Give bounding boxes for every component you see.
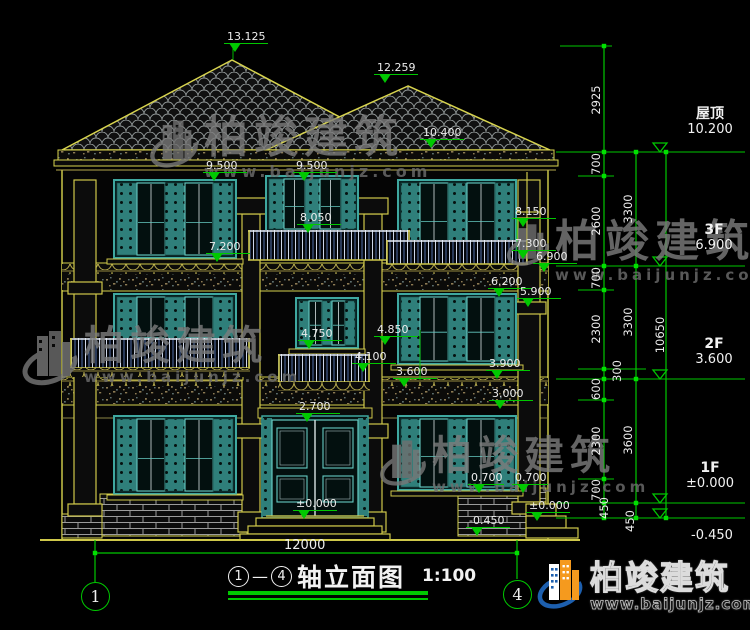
elevation-triangle-icon	[229, 43, 241, 52]
elevation-value: -0.450	[469, 514, 504, 527]
elevation-triangle-icon	[379, 74, 391, 83]
elevation-triangle-icon	[301, 413, 313, 422]
watermark-brand: 柏竣建筑	[84, 326, 301, 366]
title-underline-thin	[228, 598, 428, 600]
company-logo-site: www.baijunjz.com	[590, 595, 750, 613]
dimension-label: 2300	[589, 314, 603, 343]
dimension-label: 10650	[653, 317, 667, 354]
elevation-triangle-icon	[473, 484, 485, 493]
watermark-brand: 柏竣建筑	[204, 116, 431, 160]
storey-elevation: 3.600	[676, 352, 750, 368]
title-axis-circle-start: 1	[228, 566, 249, 587]
storey-name: 2F	[676, 336, 750, 352]
watermark-brand: 柏竣建筑	[432, 436, 649, 476]
elevation-value: 13.125	[227, 30, 266, 43]
elevation-value: 9.500	[206, 159, 238, 172]
elevation-triangle-icon	[493, 288, 505, 297]
storey-elevation: 6.900	[676, 238, 750, 254]
dimension-label: 3300	[621, 307, 635, 336]
elevation-value: 2.700	[299, 400, 331, 413]
elevation-triangle-icon	[517, 250, 529, 259]
title-scale: 1:100	[422, 566, 476, 586]
elevation-value: 3.900	[489, 357, 521, 370]
elevation-triangle-icon	[208, 172, 220, 181]
elevation-triangle-icon	[398, 378, 410, 387]
elevation-marker: 3.900	[486, 370, 530, 371]
elevation-value: 8.150	[515, 205, 547, 218]
elevation-triangle-icon	[298, 172, 310, 181]
company-logo-brand: 柏竣建筑	[590, 561, 750, 594]
elevation-value: 8.050	[300, 211, 332, 224]
storey-name: 3F	[676, 222, 750, 238]
elevation-marker: 10.400	[420, 139, 464, 140]
elevation-triangle-icon	[302, 224, 314, 233]
elevation-triangle-icon	[211, 253, 223, 262]
storey-level-label: -0.450	[674, 528, 750, 544]
company-logo-icon	[536, 556, 584, 618]
title-text: 轴立面图	[297, 558, 405, 594]
elevation-marker: 0.700	[512, 484, 548, 485]
floor-band-3f	[62, 263, 548, 291]
storey-level-label: 屋顶10.200	[672, 106, 748, 138]
storey-level-label: 2F3.600	[676, 336, 750, 368]
dimension-label: 450	[597, 497, 611, 519]
elevation-triangle-icon	[298, 510, 310, 519]
elevation-marker: ±0.000	[526, 512, 570, 513]
elevation-marker: 6.900	[533, 263, 577, 264]
elevation-triangle-icon	[471, 527, 483, 536]
elevation-value: 7.300	[515, 237, 547, 250]
axis-number: 4	[512, 585, 522, 604]
axis-bubble-1: 1	[81, 582, 110, 611]
watermark: 柏竣建筑 www.baijunjz.com	[378, 436, 649, 496]
elevation-value: 0.700	[515, 471, 547, 484]
watermark: 柏竣建筑 www.baijunjz.com	[20, 326, 301, 394]
elevation-marker: 3.000	[489, 400, 533, 401]
elevation-value: 4.100	[355, 350, 387, 363]
elevation-marker: 4.100	[352, 363, 396, 364]
storey-name: 1F	[672, 460, 748, 476]
title-dash: —	[252, 567, 268, 586]
watermark-site: www.baijunjz.com	[555, 266, 750, 284]
balcony-railing	[248, 230, 410, 260]
elevation-triangle-icon	[303, 340, 315, 349]
dimension-label: 3600	[621, 425, 635, 454]
elevation-value: 10.400	[423, 126, 462, 139]
elevation-marker: 13.125	[224, 43, 268, 44]
elevation-value: 3.600	[396, 365, 428, 378]
elevation-marker: -0.450	[466, 527, 510, 528]
elevation-value: 5.900	[520, 285, 552, 298]
dimension-label: 2600	[589, 206, 603, 235]
cad-elevation-drawing: 柏竣建筑 www.baijunjz.com 柏竣建筑 www.baijunjz.…	[0, 0, 750, 630]
elevation-value: 6.200	[491, 275, 523, 288]
elevation-value: 4.750	[301, 327, 333, 340]
elevation-marker: ±0.000	[293, 510, 337, 511]
elevation-value: 9.500	[296, 159, 328, 172]
elevation-marker: 9.500	[293, 172, 337, 173]
elevation-triangle-icon	[538, 263, 550, 272]
watermark-logo-icon	[148, 116, 200, 176]
elevation-value: 3.000	[492, 387, 524, 400]
elevation-triangle-icon	[379, 336, 391, 345]
storey-elevation: 10.200	[672, 122, 748, 138]
storey-elevation: ±0.000	[672, 476, 748, 492]
dimension-label: 600	[589, 378, 603, 400]
window	[107, 416, 243, 500]
storey-name: 屋顶	[672, 106, 748, 122]
elevation-marker: 3.600	[393, 378, 437, 379]
company-logo: 柏竣建筑 www.baijunjz.com	[536, 556, 750, 618]
dimension-label: 2925	[589, 85, 603, 114]
axis-bubble-4: 4	[503, 580, 532, 609]
elevation-triangle-icon	[357, 363, 369, 372]
dimension-label: 700	[589, 267, 603, 289]
elevation-triangle-icon	[491, 370, 503, 379]
house-elevation-canvas	[0, 0, 750, 630]
elevation-value: 4.850	[377, 323, 409, 336]
elevation-value: 12.259	[377, 61, 416, 74]
dimension-label: 3300	[621, 194, 635, 223]
title-axis-circle-end: 4	[271, 566, 292, 587]
elevation-marker: 2.700	[296, 413, 340, 414]
storey-level-label: 3F6.900	[676, 222, 750, 254]
title-underline-thick	[228, 591, 428, 595]
dimension-label: 450	[623, 510, 637, 532]
storey-level-label: 1F±0.000	[672, 460, 748, 492]
elevation-triangle-icon	[517, 218, 529, 227]
elevation-marker: 4.850	[374, 336, 418, 337]
watermark-site: www.baijunjz.com	[84, 368, 301, 386]
dimension-label: 300	[610, 360, 624, 382]
overall-width-dimension: 12000	[284, 538, 325, 553]
elevation-marker: 0.700	[468, 484, 504, 485]
elevation-value: ±0.000	[296, 497, 337, 510]
elevation-triangle-icon	[517, 484, 529, 493]
watermark: 柏竣建筑 www.baijunjz.com	[148, 116, 431, 181]
drawing-title: 1 — 4 轴立面图 1:100	[228, 558, 476, 594]
elevation-triangle-icon	[425, 139, 437, 148]
elevation-marker: 9.500	[203, 172, 247, 173]
elevation-value: 7.200	[209, 240, 241, 253]
elevation-marker: 12.259	[374, 74, 418, 75]
elevation-triangle-icon	[531, 512, 543, 521]
elevation-marker: 8.150	[512, 218, 556, 219]
dimension-label: 2300	[589, 426, 603, 455]
axis-number: 1	[90, 587, 100, 606]
dimension-label: 700	[589, 153, 603, 175]
watermark-logo-icon	[378, 436, 428, 494]
elevation-marker: 7.200	[206, 253, 250, 254]
elevation-triangle-icon	[522, 298, 534, 307]
watermark-logo-icon	[20, 326, 80, 394]
elevation-value: ±0.000	[529, 499, 570, 512]
elevation-marker: 5.900	[517, 298, 561, 299]
elevation-value: 6.900	[536, 250, 568, 263]
elevation-triangle-icon	[494, 400, 506, 409]
elevation-marker: 4.750	[298, 340, 342, 341]
storey-elevation: -0.450	[674, 528, 750, 544]
elevation-marker: 8.050	[297, 224, 341, 225]
elevation-value: 0.700	[471, 471, 503, 484]
